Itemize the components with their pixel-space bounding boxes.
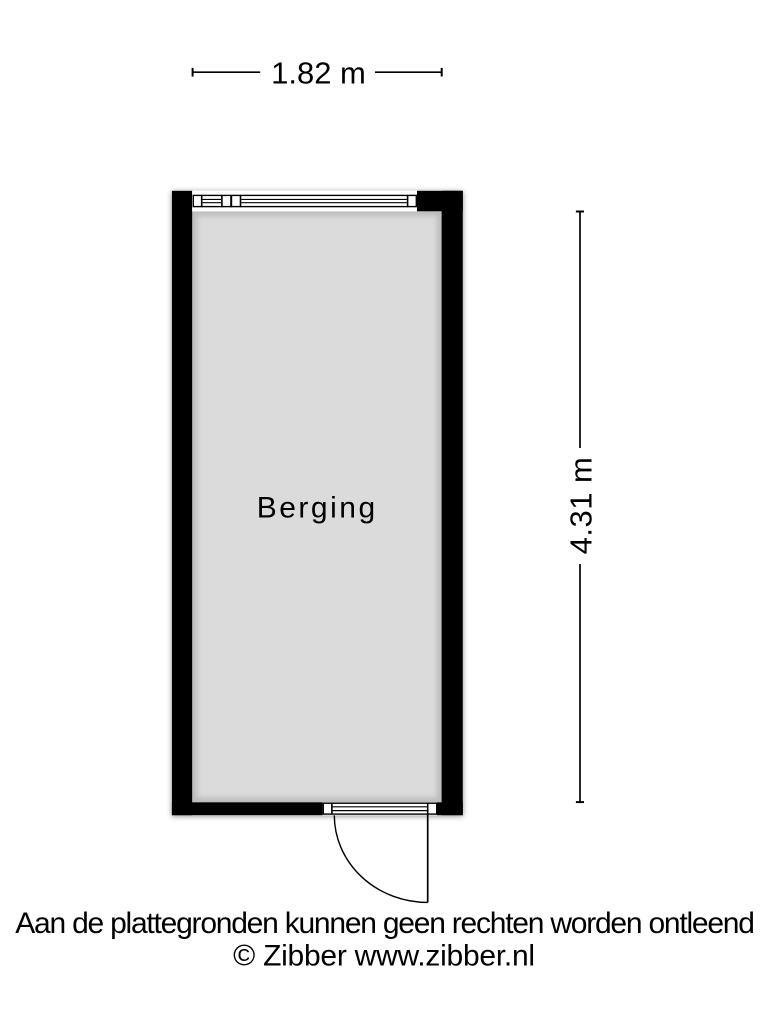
svg-text:© Zibber www.zibber.nl: © Zibber www.zibber.nl bbox=[233, 939, 535, 972]
svg-text:Berging: Berging bbox=[257, 491, 378, 524]
svg-text:1.82 m: 1.82 m bbox=[271, 56, 366, 91]
svg-text:4.31 m: 4.31 m bbox=[563, 457, 598, 555]
svg-text:Aan de plattegronden kunnen ge: Aan de plattegronden kunnen geen rechten… bbox=[15, 907, 753, 940]
